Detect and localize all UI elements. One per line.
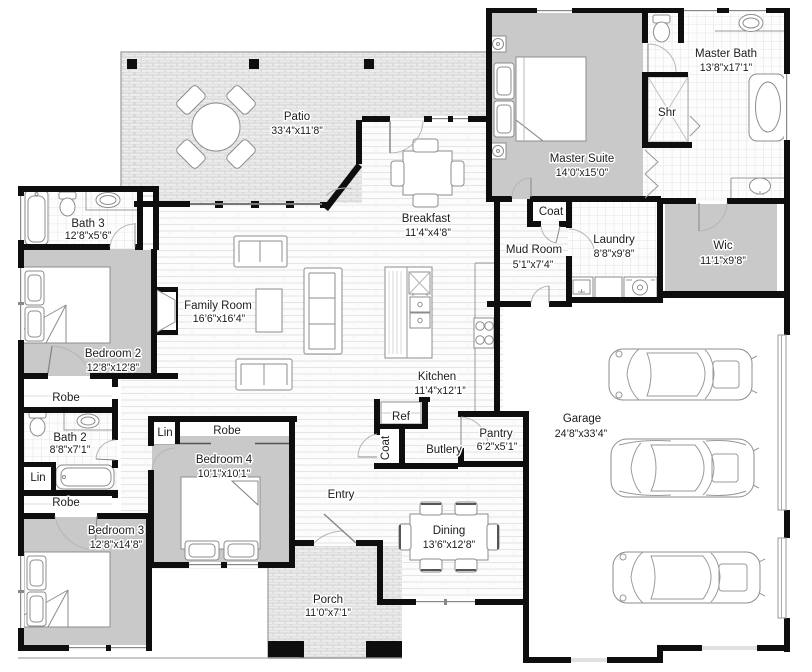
svg-text:Master Suite: Master Suite (550, 153, 615, 165)
svg-text:Dining: Dining (433, 525, 466, 537)
svg-text:14’0”x15’0”: 14’0”x15’0” (556, 167, 609, 179)
svg-text:Coat: Coat (380, 435, 392, 460)
svg-text:8’8”x9’8”: 8’8”x9’8” (594, 248, 635, 260)
svg-text:Robe: Robe (52, 497, 80, 509)
svg-text:Linen Cab: Linen Cab (146, 209, 153, 241)
svg-text:6’2”x5’1”: 6’2”x5’1” (477, 441, 518, 453)
svg-text:5’1”x7’4”: 5’1”x7’4” (513, 259, 554, 271)
svg-text:Lin: Lin (157, 427, 172, 439)
svg-text:Robe: Robe (213, 425, 241, 437)
svg-text:24’8”x33’4”: 24’8”x33’4” (555, 428, 608, 440)
svg-text:Patio: Patio (284, 111, 310, 123)
svg-text:11’1”x9’8”: 11’1”x9’8” (700, 255, 746, 267)
svg-text:Bedroom 4: Bedroom 4 (196, 454, 253, 466)
svg-text:Bath 2: Bath 2 (53, 432, 86, 444)
svg-text:13’6”x12’8”: 13’6”x12’8” (423, 539, 476, 551)
svg-text:Robe: Robe (52, 392, 80, 404)
svg-text:16’6”x16’4”: 16’6”x16’4” (193, 313, 246, 325)
svg-text:12’8”x5’6”: 12’8”x5’6” (65, 230, 112, 242)
svg-text:Breakfast: Breakfast (402, 213, 451, 225)
svg-text:10’1”x10’1”: 10’1”x10’1” (198, 468, 251, 480)
svg-text:Bath 3: Bath 3 (71, 218, 104, 230)
svg-text:11’4”x4’8”: 11’4”x4’8” (405, 227, 451, 239)
svg-text:33’4”x11’8”: 33’4”x11’8” (271, 125, 323, 137)
svg-text:Garage: Garage (563, 413, 601, 425)
svg-text:Butlery: Butlery (426, 444, 462, 456)
svg-text:Entry: Entry (328, 489, 355, 501)
svg-text:11’0”x7’1”: 11’0”x7’1” (305, 607, 351, 619)
svg-text:Lin: Lin (30, 472, 45, 484)
svg-text:Laundry: Laundry (593, 234, 635, 246)
svg-text:Shr: Shr (658, 107, 676, 119)
svg-text:Family Room: Family Room (184, 300, 252, 312)
svg-text:11’4”x12’1”: 11’4”x12’1” (414, 385, 466, 397)
svg-text:Kitchen: Kitchen (418, 371, 456, 383)
svg-text:13’8”x17’1”: 13’8”x17’1” (700, 62, 753, 74)
svg-text:12’8”x12’8”: 12’8”x12’8” (87, 362, 140, 374)
svg-text:Ref: Ref (392, 411, 411, 423)
svg-text:Pantry: Pantry (479, 428, 512, 440)
svg-text:Coat: Coat (539, 206, 564, 218)
svg-text:8’8”x7’1”: 8’8”x7’1” (50, 444, 91, 456)
svg-text:Porch: Porch (313, 594, 343, 606)
svg-text:Bedroom 2: Bedroom 2 (85, 348, 141, 360)
svg-text:Mud Room: Mud Room (506, 244, 562, 256)
svg-text:Wic: Wic (713, 240, 732, 252)
svg-text:12’8”x14’8”: 12’8”x14’8” (90, 539, 143, 551)
svg-text:Bedroom 3: Bedroom 3 (88, 525, 144, 537)
svg-text:Master Bath: Master Bath (695, 48, 757, 60)
